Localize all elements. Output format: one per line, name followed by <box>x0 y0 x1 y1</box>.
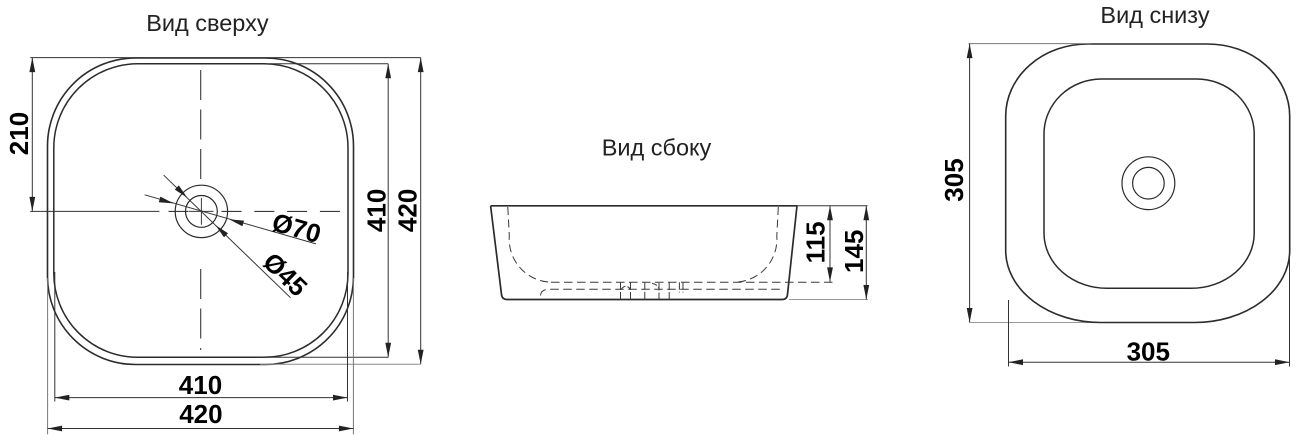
svg-text:Вид сбоку: Вид сбоку <box>602 135 712 161</box>
svg-text:410: 410 <box>179 370 222 400</box>
svg-text:305: 305 <box>939 158 969 201</box>
svg-text:Вид сверху: Вид сверху <box>146 10 269 36</box>
svg-text:305: 305 <box>1127 336 1170 366</box>
svg-text:Вид снизу: Вид снизу <box>1100 2 1209 28</box>
svg-text:420: 420 <box>393 189 423 232</box>
svg-text:410: 410 <box>362 189 392 232</box>
svg-text:115: 115 <box>801 221 831 263</box>
svg-text:210: 210 <box>4 112 34 155</box>
svg-text:145: 145 <box>839 230 869 273</box>
svg-text:420: 420 <box>179 399 222 429</box>
